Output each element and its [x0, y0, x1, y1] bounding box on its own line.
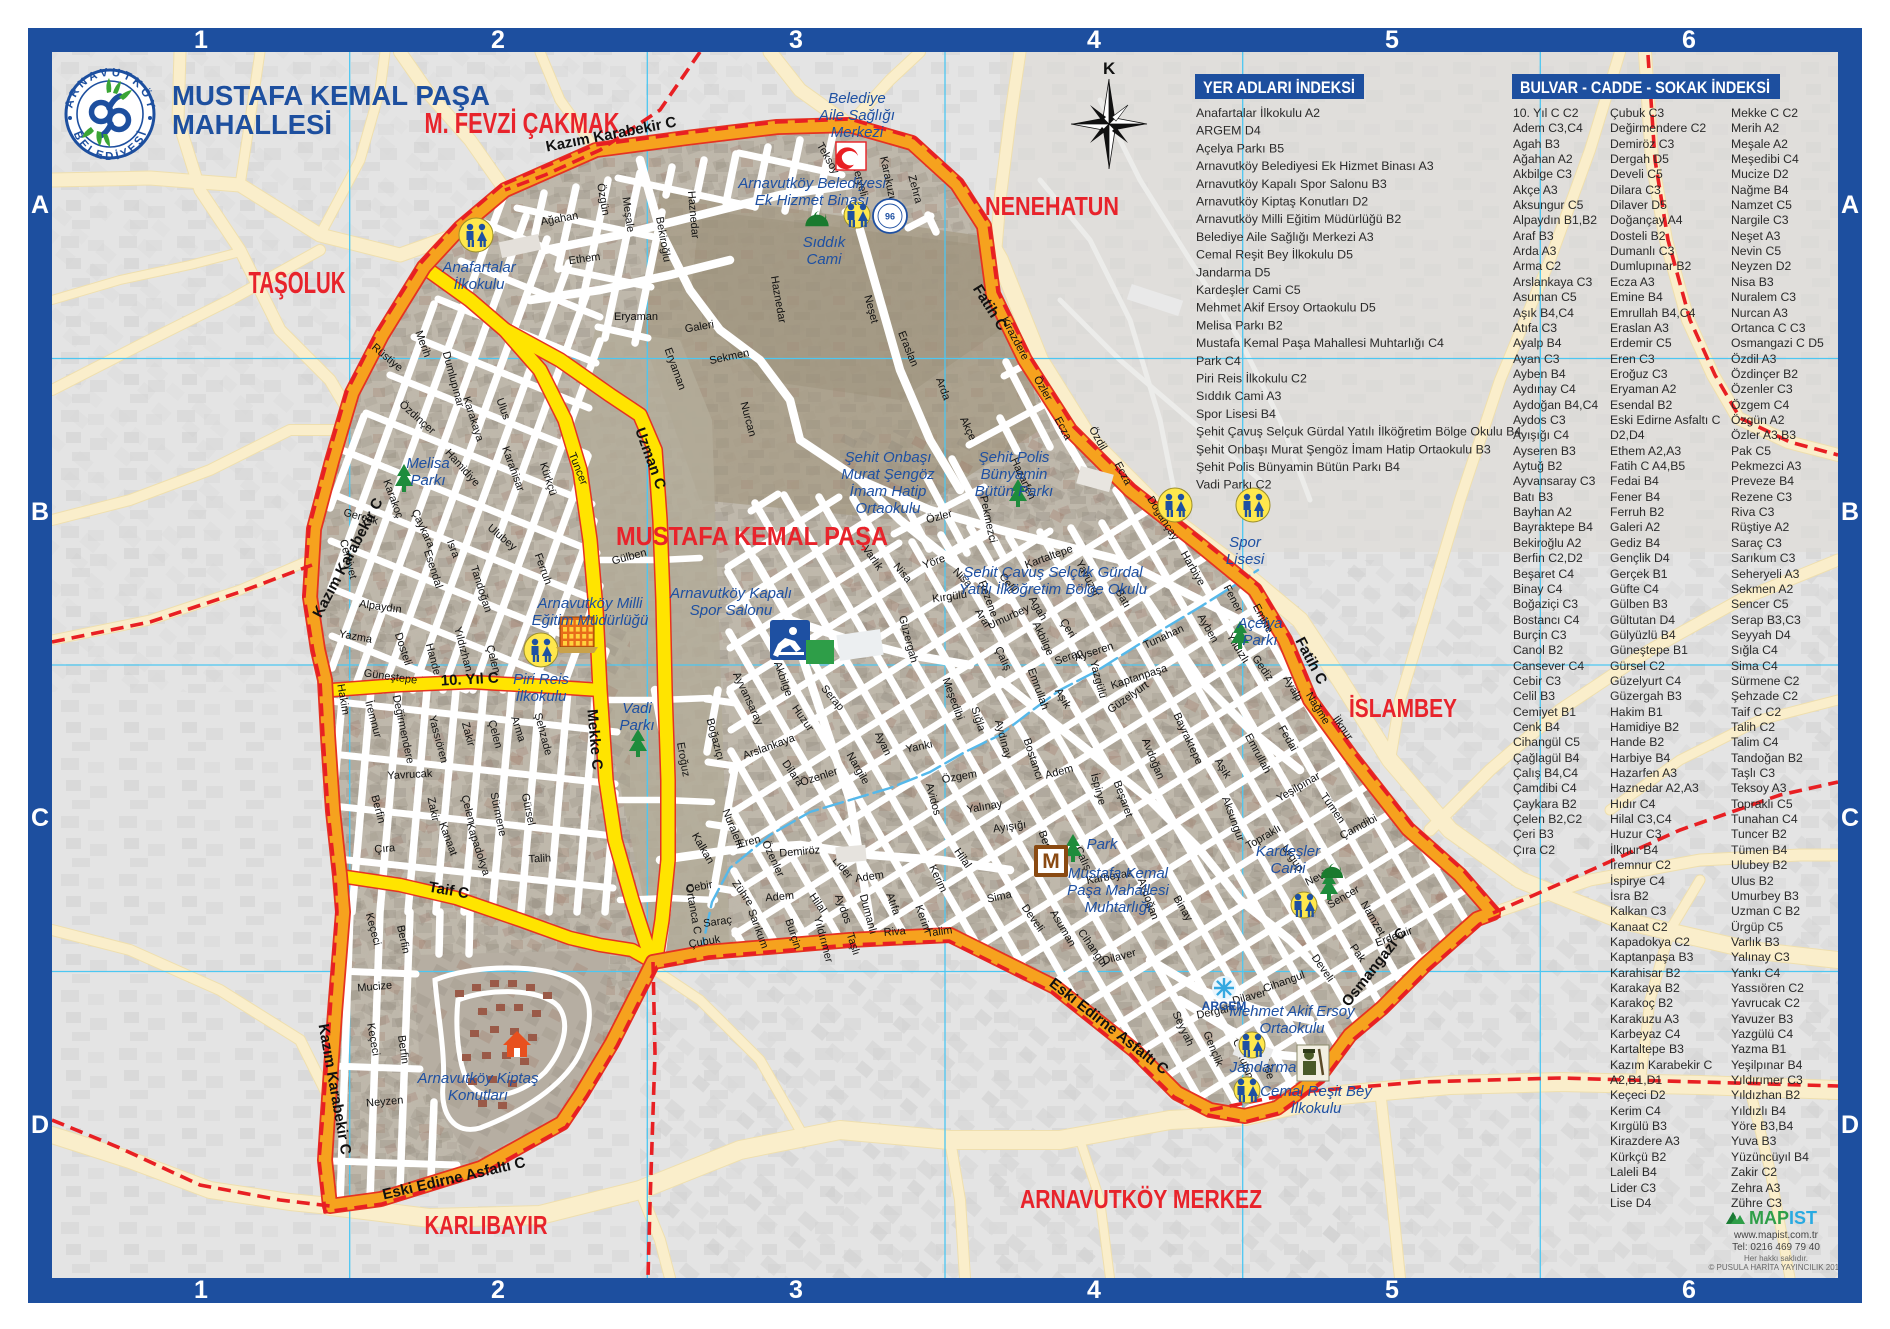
svg-text:Demiröz C3: Demiröz C3 — [1610, 137, 1675, 151]
svg-text:Karahisar B2: Karahisar B2 — [1610, 966, 1681, 980]
svg-text:Çubuk C3: Çubuk C3 — [1610, 106, 1664, 120]
svg-text:Hande B2: Hande B2 — [1610, 735, 1664, 749]
svg-text:Eren C3: Eren C3 — [1610, 352, 1655, 366]
svg-text:Haznedar A2,A3: Haznedar A2,A3 — [1610, 781, 1699, 795]
svg-text:Akçe A3: Akçe A3 — [1513, 183, 1558, 197]
svg-text:Sencer C5: Sencer C5 — [1731, 597, 1789, 611]
svg-text:Nisa B3: Nisa B3 — [1731, 275, 1774, 289]
svg-text:Taif C C2: Taif C C2 — [1731, 705, 1781, 719]
svg-text:10. Yıl C C2: 10. Yıl C C2 — [1513, 106, 1579, 120]
svg-text:Şehit Polis: Şehit Polis — [979, 449, 1050, 466]
svg-text:Ayseren B3: Ayseren B3 — [1513, 444, 1576, 458]
svg-text:Sığla C4: Sığla C4 — [1731, 643, 1778, 657]
svg-text:Güfte C4: Güfte C4 — [1610, 582, 1659, 596]
svg-text:Eroğuz C3: Eroğuz C3 — [1610, 367, 1668, 381]
svg-text:Nargile C3: Nargile C3 — [1731, 213, 1789, 227]
svg-text:Eğitim Müdürlüğü: Eğitim Müdürlüğü — [532, 612, 649, 629]
svg-text:Çelen B2,C2: Çelen B2,C2 — [1513, 812, 1582, 826]
svg-text:Dumanlı C3: Dumanlı C3 — [1610, 244, 1675, 258]
svg-text:M: M — [1042, 850, 1060, 873]
svg-text:2: 2 — [491, 1276, 505, 1304]
svg-text:Gürsel C2: Gürsel C2 — [1610, 659, 1665, 673]
svg-text:Yüzüncüyıl B4: Yüzüncüyıl B4 — [1731, 1150, 1809, 1164]
svg-text:Arnavutköy Kiptaş Konutları D2: Arnavutköy Kiptaş Konutları D2 — [1196, 195, 1368, 209]
svg-text:Kardeşler Cami C5: Kardeşler Cami C5 — [1196, 283, 1301, 297]
svg-text:Bostancı C4: Bostancı C4 — [1513, 613, 1580, 627]
svg-text:Hıdır C4: Hıdır C4 — [1610, 797, 1656, 811]
svg-text:Mustafa Kemal Paşa Mahallesi M: Mustafa Kemal Paşa Mahallesi Muhtarlığı … — [1196, 336, 1444, 350]
svg-text:Huzur C3: Huzur C3 — [1610, 827, 1662, 841]
svg-text:D2,D4: D2,D4 — [1610, 428, 1645, 442]
svg-text:Belediye Aile Sağlığı Merkezi: Belediye Aile Sağlığı Merkezi A3 — [1196, 230, 1374, 244]
svg-text:Keçeci D2: Keçeci D2 — [1610, 1088, 1666, 1102]
svg-text:Cenk B4: Cenk B4 — [1513, 720, 1560, 734]
svg-text:İlknur B4: İlknur B4 — [1610, 843, 1658, 857]
svg-text:İremnur C2: İremnur C2 — [1610, 858, 1671, 872]
svg-text:Hilal C3,C4: Hilal C3,C4 — [1610, 812, 1672, 826]
svg-text:Dosteli B2: Dosteli B2 — [1610, 229, 1666, 243]
svg-text:Spor Salonu: Spor Salonu — [690, 602, 773, 619]
svg-text:Meşale A2: Meşale A2 — [1731, 137, 1788, 151]
svg-text:Güzergah B3: Güzergah B3 — [1610, 689, 1682, 703]
svg-text:Ayben B4: Ayben B4 — [1513, 367, 1566, 381]
svg-text:Rüştiye A2: Rüştiye A2 — [1731, 520, 1789, 534]
svg-text:Anafartalar İlkokulu A2: Anafartalar İlkokulu A2 — [1196, 106, 1320, 120]
svg-text:Bütün Parkı: Bütün Parkı — [975, 483, 1053, 500]
svg-text:Fener B4: Fener B4 — [1610, 490, 1660, 504]
svg-text:Cansever C4: Cansever C4 — [1513, 659, 1584, 673]
svg-text:Lisesi: Lisesi — [1226, 551, 1265, 568]
svg-text:Dilara C3: Dilara C3 — [1610, 183, 1661, 197]
svg-text:Ethem A2,A3: Ethem A2,A3 — [1610, 444, 1681, 458]
svg-text:İlkokulu: İlkokulu — [454, 276, 506, 293]
svg-text:Tunahan C4: Tunahan C4 — [1731, 812, 1798, 826]
svg-text:Özgün A2: Özgün A2 — [1731, 413, 1785, 427]
svg-text:Mehmet Akif Ersoy: Mehmet Akif Ersoy — [1229, 1003, 1356, 1020]
svg-text:Arslankaya C3: Arslankaya C3 — [1513, 275, 1592, 289]
svg-text:Çalış B4,C4: Çalış B4,C4 — [1513, 766, 1578, 780]
svg-text:6: 6 — [1682, 26, 1696, 54]
svg-text:Nevin C5: Nevin C5 — [1731, 244, 1781, 258]
svg-text:Erdemir C5: Erdemir C5 — [1610, 336, 1672, 350]
svg-text:Tuncer B2: Tuncer B2 — [1731, 827, 1787, 841]
svg-text:Aydos C3: Aydos C3 — [1513, 413, 1566, 427]
svg-text:Lise D4: Lise D4 — [1610, 1196, 1652, 1210]
svg-text:Arnavutköy Milli Eğitim Müdürl: Arnavutköy Milli Eğitim Müdürlüğü B2 — [1196, 212, 1401, 226]
svg-text:Cami: Cami — [1270, 860, 1306, 877]
svg-text:Kapadokya C2: Kapadokya C2 — [1610, 935, 1690, 949]
svg-text:Ortaokulu: Ortaokulu — [855, 500, 921, 517]
svg-text:Vadi: Vadi — [622, 700, 652, 717]
svg-text:Bayhan A2: Bayhan A2 — [1513, 505, 1572, 519]
svg-text:Zehra A3: Zehra A3 — [1731, 1181, 1781, 1195]
svg-text:Özgem C4: Özgem C4 — [1731, 398, 1789, 412]
svg-text:B: B — [31, 498, 49, 526]
svg-text:Parkı: Parkı — [410, 472, 445, 489]
svg-text:Eski Edirne Asfaltı C: Eski Edirne Asfaltı C — [1610, 413, 1721, 427]
svg-text:Batı B3: Batı B3 — [1513, 490, 1553, 504]
svg-text:Ulus B2: Ulus B2 — [1731, 874, 1774, 888]
svg-text:Sıddık: Sıddık — [803, 234, 847, 251]
svg-text:Tandoğan B2: Tandoğan B2 — [1731, 751, 1803, 765]
svg-text:Adem C3,C4: Adem C3,C4 — [1513, 121, 1583, 135]
svg-text:Gençlik D4: Gençlik D4 — [1610, 551, 1670, 565]
svg-text:İlkokulu: İlkokulu — [516, 688, 568, 705]
svg-text:Yuva B3: Yuva B3 — [1731, 1134, 1777, 1148]
svg-text:Paşa Mahallesi: Paşa Mahallesi — [1067, 882, 1169, 899]
svg-text:Berfin C2,D2: Berfin C2,D2 — [1513, 551, 1583, 565]
svg-text:Pak C5: Pak C5 — [1731, 444, 1771, 458]
svg-text:Şehit Onbaşı Murat Şengöz İmam: Şehit Onbaşı Murat Şengöz İmam Hatip Ort… — [1196, 442, 1491, 456]
svg-text:6: 6 — [1682, 1276, 1696, 1304]
svg-text:Güneştepe B1: Güneştepe B1 — [1610, 643, 1688, 657]
svg-text:Çamdibi C4: Çamdibi C4 — [1513, 781, 1577, 795]
svg-text:Gültutan D4: Gültutan D4 — [1610, 613, 1675, 627]
svg-text:Harbiye B4: Harbiye B4 — [1610, 751, 1671, 765]
svg-text:C: C — [1841, 804, 1859, 832]
svg-text:Çağlagül B4: Çağlagül B4 — [1513, 751, 1580, 765]
svg-text:Uzman C B2: Uzman C B2 — [1731, 904, 1800, 918]
svg-text:Konutları: Konutları — [448, 1087, 508, 1104]
svg-text:Ortaokulu: Ortaokulu — [1259, 1020, 1325, 1037]
svg-text:Taşlı C3: Taşlı C3 — [1731, 766, 1775, 780]
svg-text:Karakuzu A3: Karakuzu A3 — [1610, 1012, 1679, 1026]
svg-text:Arda A3: Arda A3 — [1513, 244, 1557, 258]
svg-text:Adem: Adem — [765, 890, 795, 904]
svg-text:Yöre B3,B4: Yöre B3,B4 — [1731, 1119, 1794, 1133]
svg-text:Jandarma: Jandarma — [1229, 1059, 1297, 1076]
svg-text:Kirazdere A3: Kirazdere A3 — [1610, 1134, 1680, 1148]
svg-text:Arnavutköy Belediyesi Ek Hizme: Arnavutköy Belediyesi Ek Hizmet Binası A… — [1196, 159, 1434, 173]
svg-text:© PUSULA HARİTA YAYINCILIK 201: © PUSULA HARİTA YAYINCILIK 2015 — [1708, 1263, 1844, 1272]
svg-text:Dergah D5: Dergah D5 — [1610, 152, 1669, 166]
svg-text:Atıfa C3: Atıfa C3 — [1513, 321, 1557, 335]
svg-text:C: C — [31, 804, 49, 832]
svg-text:Şehit Çavuş Selçuk Gürdal Yatı: Şehit Çavuş Selçuk Gürdal Yatılı İlköğre… — [1196, 425, 1521, 439]
svg-text:Aydınay C4: Aydınay C4 — [1513, 382, 1576, 396]
svg-text:TAŞOLUK: TAŞOLUK — [249, 265, 346, 300]
svg-text:Yazma B1: Yazma B1 — [1731, 1042, 1787, 1056]
svg-text:Yıldızlı B4: Yıldızlı B4 — [1731, 1104, 1786, 1118]
svg-text:Muhtarlığı: Muhtarlığı — [1085, 899, 1152, 916]
svg-text:Şehit Çavuş Selçuk Gürdal: Şehit Çavuş Selçuk Gürdal — [963, 564, 1143, 581]
svg-text:Sıddık Cami A3: Sıddık Cami A3 — [1196, 389, 1282, 403]
svg-text:Yavrucak: Yavrucak — [387, 768, 433, 782]
svg-text:Talih: Talih — [528, 852, 551, 865]
svg-text:Aydoğan B4,C4: Aydoğan B4,C4 — [1513, 398, 1598, 412]
svg-text:ARNAVUTKÖY MERKEZ: ARNAVUTKÖY MERKEZ — [1020, 1184, 1262, 1214]
svg-text:Meşedibi C4: Meşedibi C4 — [1731, 152, 1799, 166]
svg-text:Kazım Karabekir C: Kazım Karabekir C — [1610, 1058, 1712, 1072]
svg-text:A: A — [1841, 191, 1859, 219]
svg-text:Yassıören C2: Yassıören C2 — [1731, 981, 1804, 995]
svg-text:Sima C4: Sima C4 — [1731, 659, 1778, 673]
svg-text:Burçin C3: Burçin C3 — [1513, 628, 1567, 642]
svg-text:Cemal Reşit Bey: Cemal Reşit Bey — [1260, 1083, 1373, 1100]
svg-text:Ferruh B2: Ferruh B2 — [1610, 505, 1664, 519]
svg-text:Talih C2: Talih C2 — [1731, 720, 1775, 734]
svg-text:İlkokulu: İlkokulu — [1291, 1100, 1343, 1117]
svg-text:Çıra C2: Çıra C2 — [1513, 843, 1555, 857]
svg-text:Gediz B4: Gediz B4 — [1610, 536, 1660, 550]
svg-text:Özenler C3: Özenler C3 — [1731, 382, 1793, 396]
svg-text:Anafartalar: Anafartalar — [441, 259, 516, 276]
svg-text:Nuralem C3: Nuralem C3 — [1731, 290, 1796, 304]
svg-text:Kalkan C3: Kalkan C3 — [1610, 904, 1666, 918]
svg-text:Namzet C5: Namzet C5 — [1731, 198, 1792, 212]
svg-text:Preveze B4: Preveze B4 — [1731, 474, 1794, 488]
svg-text:İmam Hatip: İmam Hatip — [850, 483, 927, 500]
svg-text:Cemal Reşit Bey İlkokulu D5: Cemal Reşit Bey İlkokulu D5 — [1196, 248, 1353, 262]
svg-text:Çeri B3: Çeri B3 — [1513, 827, 1554, 841]
svg-text:Doğançay A4: Doğançay A4 — [1610, 213, 1683, 227]
svg-text:MAPIST: MAPIST — [1749, 1208, 1817, 1228]
svg-text:Beşaret C4: Beşaret C4 — [1513, 567, 1574, 581]
svg-text:Karbeyaz C4: Karbeyaz C4 — [1610, 1027, 1681, 1041]
svg-text:Gülyüzlü B4: Gülyüzlü B4 — [1610, 628, 1676, 642]
svg-text:Ürgüp C5: Ürgüp C5 — [1731, 920, 1783, 934]
svg-text:Riva: Riva — [883, 925, 907, 939]
svg-text:Zakir C2: Zakir C2 — [1731, 1165, 1777, 1179]
svg-text:Açelya: Açelya — [1236, 615, 1282, 632]
svg-text:Ayan C3: Ayan C3 — [1513, 352, 1560, 366]
svg-text:Osmangazi C D5: Osmangazi C D5 — [1731, 336, 1824, 350]
svg-text:Kartaltepe B3: Kartaltepe B3 — [1610, 1042, 1684, 1056]
svg-text:Varlık B3: Varlık B3 — [1731, 935, 1780, 949]
svg-text:Karakoç B2: Karakoç B2 — [1610, 996, 1673, 1010]
svg-text:Kanaat C2: Kanaat C2 — [1610, 920, 1668, 934]
svg-text:Kerim C4: Kerim C4 — [1610, 1104, 1661, 1118]
svg-text:Neyzen D2: Neyzen D2 — [1731, 259, 1792, 273]
svg-text:Alpaydın B1,B2: Alpaydın B1,B2 — [1513, 213, 1597, 227]
svg-text:Topraklı C5: Topraklı C5 — [1731, 797, 1793, 811]
svg-text:Şehit Polis Bünyamin Bütün Par: Şehit Polis Bünyamin Bütün Parkı B4 — [1196, 460, 1400, 474]
svg-text:Çıra: Çıra — [374, 842, 397, 856]
svg-text:A2,B1,D1: A2,B1,D1 — [1610, 1073, 1662, 1087]
svg-text:www.mapist.com.tr: www.mapist.com.tr — [1733, 1230, 1819, 1241]
svg-text:Rezene C3: Rezene C3 — [1731, 490, 1792, 504]
svg-text:MUSTAFA KEMAL PAŞA: MUSTAFA KEMAL PAŞA — [172, 80, 490, 111]
svg-text:3: 3 — [789, 26, 803, 54]
svg-text:Çaykara B2: Çaykara B2 — [1513, 797, 1577, 811]
svg-text:Emrullah B4,C4: Emrullah B4,C4 — [1610, 306, 1696, 320]
svg-text:Yalınay C3: Yalınay C3 — [1731, 950, 1790, 964]
svg-text:Riva C3: Riva C3 — [1731, 505, 1775, 519]
svg-text:Asuman C5: Asuman C5 — [1513, 290, 1577, 304]
svg-text:Şehit Onbaşı: Şehit Onbaşı — [845, 449, 932, 466]
svg-text:Gerçek B1: Gerçek B1 — [1610, 567, 1668, 581]
svg-text:Nağme B4: Nağme B4 — [1731, 183, 1789, 197]
svg-text:Lider C3: Lider C3 — [1610, 1181, 1656, 1195]
svg-text:Celil B3: Celil B3 — [1513, 689, 1555, 703]
svg-text:KARLIBAYIR: KARLIBAYIR — [425, 1210, 548, 1240]
svg-text:Karakaya B2: Karakaya B2 — [1610, 981, 1680, 995]
svg-text:Saraç C3: Saraç C3 — [1731, 536, 1782, 550]
svg-text:B: B — [1841, 498, 1859, 526]
svg-text:Aytuğ B2: Aytuğ B2 — [1513, 459, 1562, 473]
svg-text:Bünyamin: Bünyamin — [981, 466, 1048, 483]
svg-text:Aile Sağlığı: Aile Sağlığı — [818, 107, 895, 124]
svg-text:İSLAMBEY: İSLAMBEY — [1349, 693, 1457, 723]
svg-text:D: D — [1841, 1111, 1859, 1139]
svg-text:Neşet A3: Neşet A3 — [1731, 229, 1781, 243]
svg-text:5: 5 — [1385, 1276, 1399, 1304]
svg-text:Cemiyet B1: Cemiyet B1 — [1513, 705, 1576, 719]
svg-text:ARGEM D4: ARGEM D4 — [1196, 124, 1261, 138]
svg-text:Bekiroğlu A2: Bekiroğlu A2 — [1513, 536, 1582, 550]
svg-text:MAHALLESİ: MAHALLESİ — [172, 109, 332, 140]
svg-text:Arnavutköy Milli: Arnavutköy Milli — [536, 595, 643, 612]
svg-text:Piri Reis: Piri Reis — [513, 671, 569, 688]
svg-text:Dumlupınar B2: Dumlupınar B2 — [1610, 259, 1692, 273]
svg-text:Araf B3: Araf B3 — [1513, 229, 1554, 243]
svg-text:Fedai B4: Fedai B4 — [1610, 474, 1659, 488]
svg-text:Hakim B1: Hakim B1 — [1610, 705, 1663, 719]
svg-text:1: 1 — [194, 26, 208, 54]
svg-text:3: 3 — [789, 1276, 803, 1304]
svg-text:Hazarfen A3: Hazarfen A3 — [1610, 766, 1677, 780]
svg-text:Belediye: Belediye — [828, 90, 886, 107]
svg-text:Kardeşler: Kardeşler — [1256, 843, 1321, 860]
svg-text:Esendal B2: Esendal B2 — [1610, 398, 1673, 412]
svg-text:MUSTAFA KEMAL PAŞA: MUSTAFA KEMAL PAŞA — [616, 521, 888, 551]
svg-text:Ağahan A2: Ağahan A2 — [1513, 152, 1573, 166]
svg-text:Yeşilpınar B4: Yeşilpınar B4 — [1731, 1058, 1803, 1072]
svg-text:Pekmezci A3: Pekmezci A3 — [1731, 459, 1802, 473]
svg-text:Park C4: Park C4 — [1196, 354, 1241, 368]
svg-text:Ayışığı C4: Ayışığı C4 — [1513, 428, 1569, 442]
svg-text:Akbilge C3: Akbilge C3 — [1513, 167, 1572, 181]
svg-text:Ek Hizmet Binası: Ek Hizmet Binası — [755, 192, 869, 209]
svg-text:Güzelyurt C4: Güzelyurt C4 — [1610, 674, 1681, 688]
svg-text:Binay C4: Binay C4 — [1513, 582, 1563, 596]
svg-text:Her hakkı saklıdır.: Her hakkı saklıdır. — [1744, 1254, 1808, 1263]
svg-text:Spor Lisesi B4: Spor Lisesi B4 — [1196, 407, 1276, 421]
svg-text:Melisa: Melisa — [406, 455, 449, 472]
svg-text:Eryaman A2: Eryaman A2 — [1610, 382, 1677, 396]
svg-text:Yavuzer B3: Yavuzer B3 — [1731, 1012, 1793, 1026]
svg-text:Cami: Cami — [806, 251, 842, 268]
svg-text:D: D — [31, 1111, 49, 1139]
svg-text:K: K — [1103, 59, 1116, 78]
svg-text:Laleli B4: Laleli B4 — [1610, 1165, 1657, 1179]
svg-text:Ortanca C C3: Ortanca C C3 — [1731, 321, 1806, 335]
svg-text:Arnavutköy Kapalı: Arnavutköy Kapalı — [669, 585, 792, 602]
svg-text:Vadi Parkı C2: Vadi Parkı C2 — [1196, 478, 1272, 492]
svg-text:Sarıkum C3: Sarıkum C3 — [1731, 551, 1796, 565]
svg-text:Seheryeli A3: Seheryeli A3 — [1731, 567, 1800, 581]
svg-text:Serap B3,C3: Serap B3,C3 — [1731, 613, 1801, 627]
svg-text:A: A — [31, 191, 49, 219]
svg-text:Canol B2: Canol B2 — [1513, 643, 1563, 657]
svg-text:Arma C2: Arma C2 — [1513, 259, 1561, 273]
svg-text:Yavrucak C2: Yavrucak C2 — [1731, 996, 1800, 1010]
svg-text:Arnavutköy Kiptaş: Arnavutköy Kiptaş — [417, 1070, 539, 1087]
svg-text:Kürkçü B2: Kürkçü B2 — [1610, 1150, 1666, 1164]
svg-text:Ecza A3: Ecza A3 — [1610, 275, 1655, 289]
svg-text:Parkı: Parkı — [1242, 632, 1277, 649]
svg-text:Jandarma D5: Jandarma D5 — [1196, 265, 1270, 279]
svg-text:Yatılı İlköğretim Bölge Okulu: Yatılı İlköğretim Bölge Okulu — [959, 581, 1148, 598]
svg-text:Cebir C3: Cebir C3 — [1513, 674, 1561, 688]
svg-text:2: 2 — [491, 26, 505, 54]
svg-text:Seyyah D4: Seyyah D4 — [1731, 628, 1791, 642]
svg-text:Piri Reis İlkokulu C2: Piri Reis İlkokulu C2 — [1196, 372, 1307, 386]
svg-text:Gülben B3: Gülben B3 — [1610, 597, 1668, 611]
svg-text:Cihangül C5: Cihangül C5 — [1513, 735, 1580, 749]
svg-text:Değirmendere C2: Değirmendere C2 — [1610, 121, 1706, 135]
svg-text:Yankı C4: Yankı C4 — [1731, 966, 1780, 980]
svg-text:Parkı: Parkı — [619, 717, 654, 734]
svg-text:Emine B4: Emine B4 — [1610, 290, 1663, 304]
svg-text:Merih A2: Merih A2 — [1731, 121, 1779, 135]
svg-text:Spor: Spor — [1229, 534, 1262, 551]
svg-text:96: 96 — [885, 212, 895, 222]
svg-text:Yazgülü C4: Yazgülü C4 — [1731, 1027, 1793, 1041]
svg-text:Eraslan A3: Eraslan A3 — [1610, 321, 1669, 335]
svg-text:Özler A3,B3: Özler A3,B3 — [1731, 428, 1796, 442]
svg-text:BULVAR - CADDE - SOKAK İNDEKSİ: BULVAR - CADDE - SOKAK İNDEKSİ — [1520, 79, 1770, 97]
svg-text:Murat Şengöz: Murat Şengöz — [841, 466, 935, 483]
svg-text:Arnavutköy Belediyesi: Arnavutköy Belediyesi — [737, 175, 886, 192]
svg-text:Ulubey B2: Ulubey B2 — [1731, 858, 1787, 872]
svg-text:Mekke C C2: Mekke C C2 — [1731, 106, 1798, 120]
svg-text:4: 4 — [1087, 26, 1101, 54]
svg-text:1: 1 — [194, 1276, 208, 1304]
svg-text:Kaptanpaşa B3: Kaptanpaşa B3 — [1610, 950, 1694, 964]
svg-text:Şehzade C2: Şehzade C2 — [1731, 689, 1798, 703]
svg-text:Ayalp B4: Ayalp B4 — [1513, 336, 1562, 350]
svg-text:Talim C4: Talim C4 — [1731, 735, 1779, 749]
svg-text:Yıldırımer C3: Yıldırımer C3 — [1731, 1073, 1803, 1087]
svg-text:Agah B3: Agah B3 — [1513, 137, 1560, 151]
svg-text:5: 5 — [1385, 26, 1399, 54]
svg-text:Tel: 0216 469 79 40: Tel: 0216 469 79 40 — [1732, 1242, 1820, 1253]
svg-text:Aksungur C5: Aksungur C5 — [1513, 198, 1584, 212]
svg-text:Galeri A2: Galeri A2 — [1610, 520, 1660, 534]
svg-text:Arnavutköy Kapalı Spor Salonu: Arnavutköy Kapalı Spor Salonu B3 — [1196, 177, 1387, 191]
svg-text:Yıldızhan B2: Yıldızhan B2 — [1731, 1088, 1800, 1102]
svg-text:Kırgülü B3: Kırgülü B3 — [1610, 1119, 1667, 1133]
svg-text:Nurcan A3: Nurcan A3 — [1731, 306, 1788, 320]
svg-text:Umurbey B3: Umurbey B3 — [1731, 889, 1799, 903]
svg-text:İsra B2: İsra B2 — [1610, 889, 1649, 903]
svg-text:Melisa Parkı B2: Melisa Parkı B2 — [1196, 318, 1283, 332]
svg-text:4: 4 — [1087, 1276, 1101, 1304]
svg-text:Aşık B4,C4: Aşık B4,C4 — [1513, 306, 1574, 320]
svg-text:İspirye C4: İspirye C4 — [1610, 874, 1665, 888]
svg-text:Eryaman: Eryaman — [614, 311, 658, 323]
svg-text:Teksoy A3: Teksoy A3 — [1731, 781, 1787, 795]
svg-text:Fatih C A4,B5: Fatih C A4,B5 — [1610, 459, 1685, 473]
svg-text:Özdil A3: Özdil A3 — [1731, 352, 1777, 366]
svg-text:Dilaver D5: Dilaver D5 — [1610, 198, 1667, 212]
svg-text:Boğaziçi C3: Boğaziçi C3 — [1513, 597, 1578, 611]
svg-text:Sürmene C2: Sürmene C2 — [1731, 674, 1800, 688]
svg-text:Develi C5: Develi C5 — [1610, 167, 1663, 181]
svg-text:Tümen B4: Tümen B4 — [1731, 843, 1787, 857]
svg-text:YER ADLARI İNDEKSİ: YER ADLARI İNDEKSİ — [1203, 79, 1355, 97]
svg-text:Mehmet Akif Ersoy Ortaokulu D5: Mehmet Akif Ersoy Ortaokulu D5 — [1196, 301, 1376, 315]
svg-text:Bayraktepe B4: Bayraktepe B4 — [1513, 520, 1593, 534]
svg-text:Mustafa Kemal: Mustafa Kemal — [1068, 865, 1169, 882]
svg-text:Özdinçer B2: Özdinçer B2 — [1731, 367, 1798, 381]
svg-text:Ayvansaray C3: Ayvansaray C3 — [1513, 474, 1596, 488]
svg-text:Mucize D2: Mucize D2 — [1731, 167, 1789, 181]
svg-text:Park: Park — [1087, 836, 1119, 853]
svg-text:Hamidiye B2: Hamidiye B2 — [1610, 720, 1679, 734]
svg-text:NENEHATUN: NENEHATUN — [985, 191, 1119, 221]
